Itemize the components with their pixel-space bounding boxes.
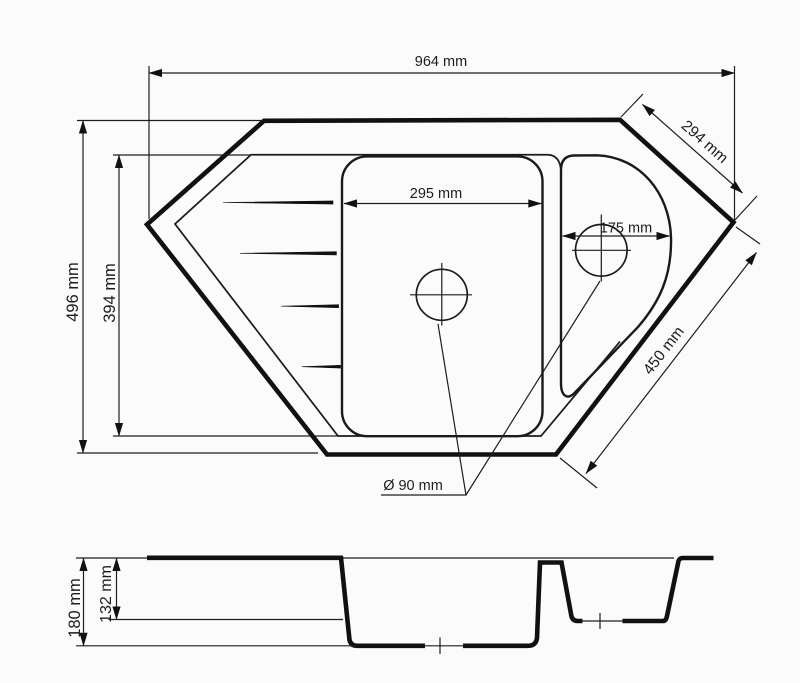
svg-text:Ø 90 mm: Ø 90 mm [383,478,443,494]
svg-text:964 mm: 964 mm [415,54,467,70]
svg-text:496 mm: 496 mm [64,262,82,322]
svg-text:394 mm: 394 mm [101,263,119,323]
svg-text:175 mm: 175 mm [600,221,652,237]
svg-text:180 mm: 180 mm [66,578,84,638]
svg-text:295 mm: 295 mm [410,186,462,202]
svg-text:132 mm: 132 mm [98,565,115,623]
